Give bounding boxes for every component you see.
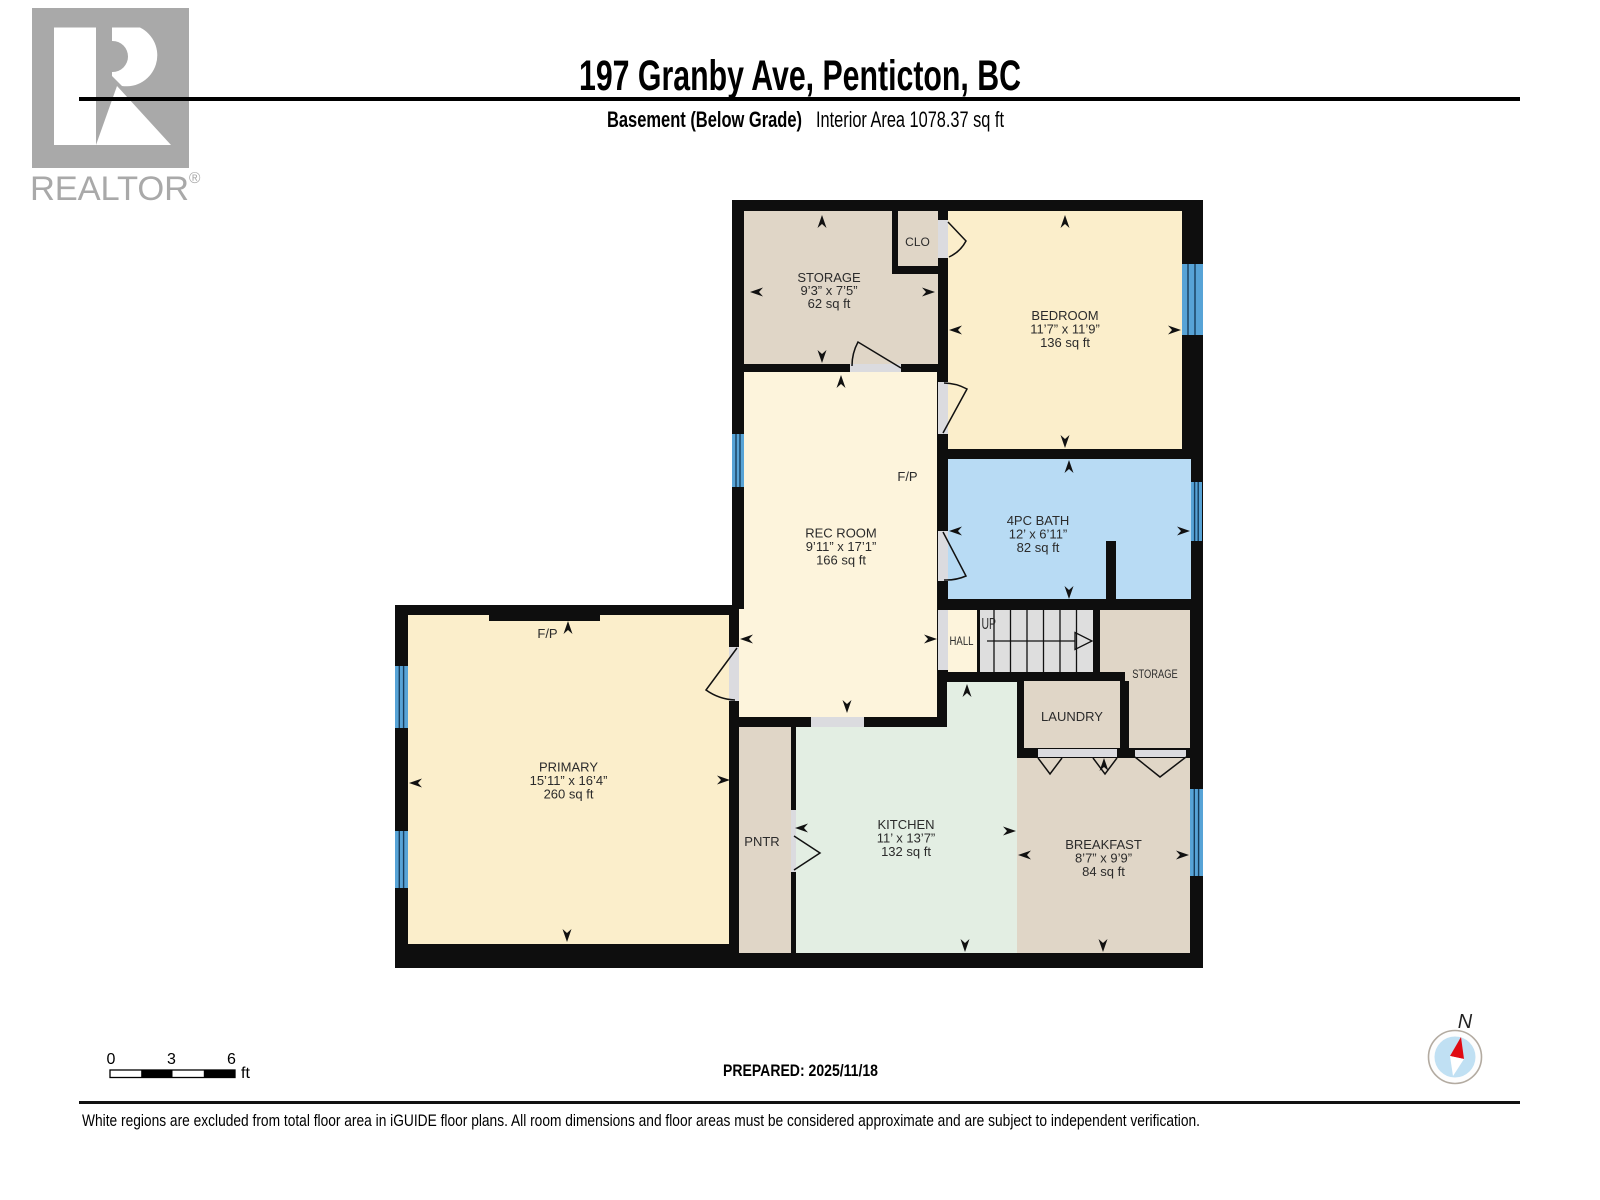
svg-text:PNTR: PNTR — [744, 834, 779, 849]
svg-text:REALTOR: REALTOR — [30, 170, 189, 208]
svg-text:166 sq ft: 166 sq ft — [816, 553, 866, 568]
svg-text:CLO: CLO — [905, 235, 930, 249]
svg-text:62 sq ft: 62 sq ft — [808, 296, 851, 311]
svg-text:HALL: HALL — [950, 636, 974, 648]
svg-text:White regions are excluded fro: White regions are excluded from total fl… — [82, 1111, 1200, 1130]
svg-text:F/P: F/P — [537, 626, 557, 641]
svg-text:®: ® — [189, 170, 201, 187]
svg-text:N: N — [1458, 1011, 1473, 1033]
svg-text:136 sq ft: 136 sq ft — [1040, 335, 1090, 350]
svg-text:LAUNDRY: LAUNDRY — [1041, 709, 1103, 724]
svg-text:PREPARED: 2025/11/18: PREPARED: 2025/11/18 — [723, 1062, 878, 1080]
svg-text:84 sq ft: 84 sq ft — [1082, 864, 1125, 879]
svg-text:STORAGE: STORAGE — [1132, 667, 1178, 681]
svg-text:3: 3 — [167, 1051, 176, 1068]
svg-text:260 sq ft: 260 sq ft — [544, 787, 594, 802]
svg-text:197 Granby Ave, Penticton, BC: 197 Granby Ave, Penticton, BC — [579, 52, 1021, 100]
svg-text:F/P: F/P — [897, 469, 917, 484]
svg-text:82 sq ft: 82 sq ft — [1017, 540, 1060, 555]
svg-text:UP: UP — [982, 616, 997, 633]
svg-text:6: 6 — [227, 1051, 236, 1068]
svg-text:ft: ft — [241, 1065, 250, 1082]
svg-text:Basement (Below Grade): Basement (Below Grade) — [607, 107, 802, 132]
svg-text:0: 0 — [107, 1051, 116, 1068]
svg-text:132 sq ft: 132 sq ft — [881, 844, 931, 859]
svg-text:Interior Area 1078.37 sq ft: Interior Area 1078.37 sq ft — [816, 107, 1005, 132]
